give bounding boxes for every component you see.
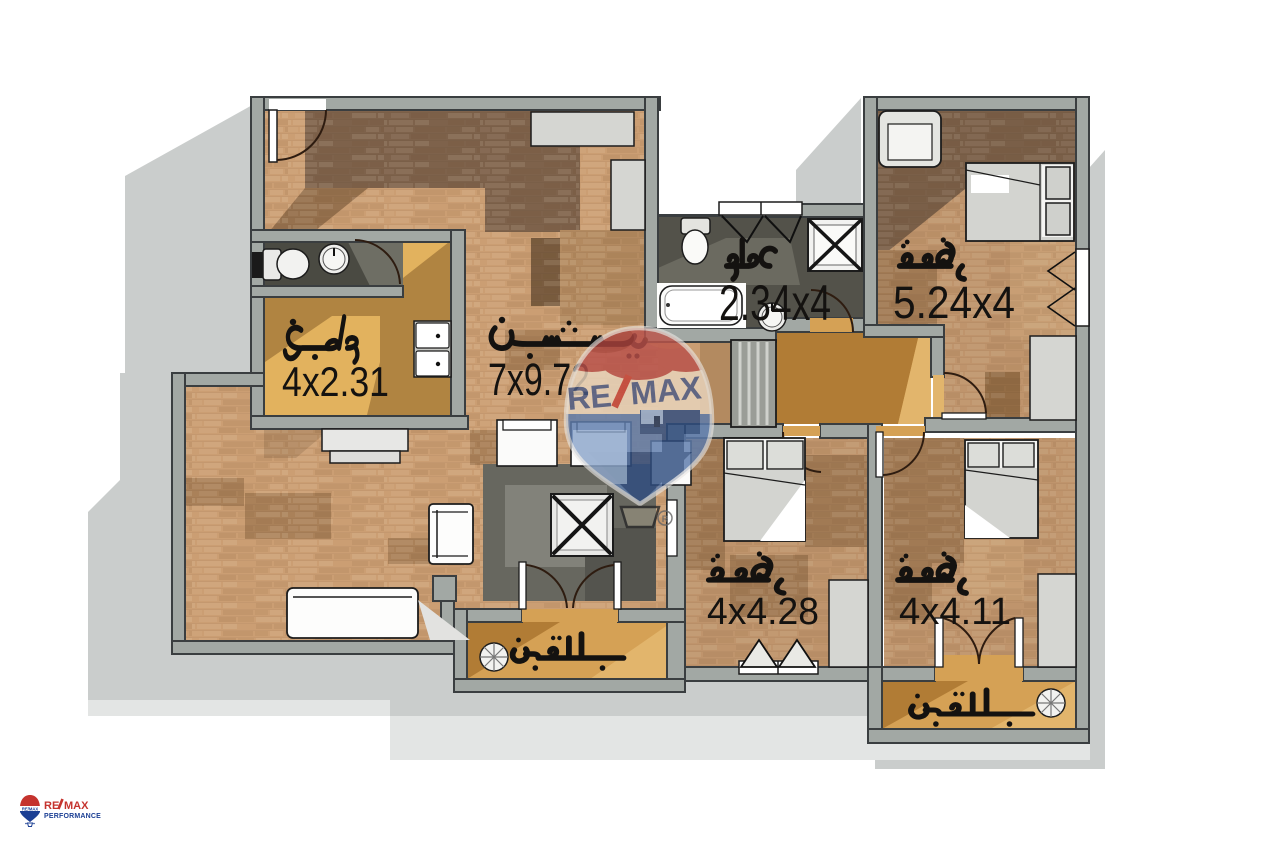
svg-text:4x4.11: 4x4.11 [899,591,1011,633]
svg-text:4x2.31: 4x2.31 [282,358,389,405]
svg-text:MAX: MAX [64,800,89,812]
svg-text:R: R [662,514,669,524]
svg-text:2.34x4: 2.34x4 [719,275,831,331]
svg-text:RE/MAX: RE/MAX [22,806,38,811]
svg-text:PERFORMANCE: PERFORMANCE [44,813,101,820]
svg-text:MAX: MAX [629,369,704,411]
svg-text:RE: RE [44,800,59,812]
svg-text:5.24x4: 5.24x4 [893,277,1015,328]
svg-text:RE: RE [566,377,613,417]
svg-text:4x4.28: 4x4.28 [707,591,819,633]
